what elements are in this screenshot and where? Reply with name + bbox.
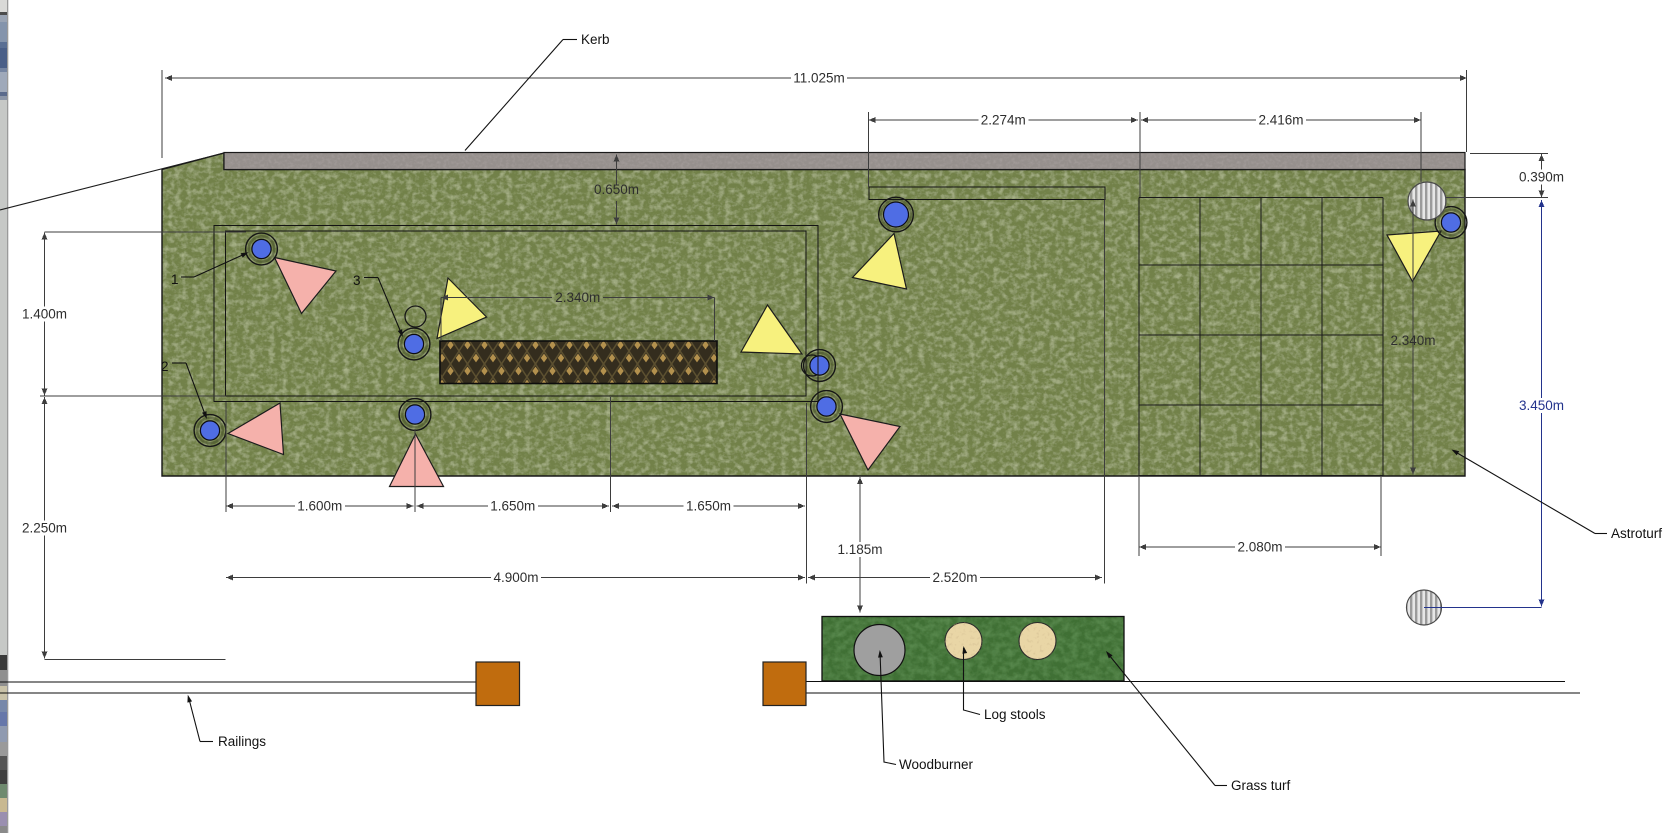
svg-text:1.600m: 1.600m (297, 499, 342, 514)
svg-text:0.390m: 0.390m (1519, 170, 1564, 185)
svg-text:2.250m: 2.250m (22, 520, 67, 535)
svg-text:2.340m: 2.340m (1390, 333, 1435, 348)
svg-text:0.650m: 0.650m (594, 182, 639, 197)
svg-text:2.416m: 2.416m (1258, 113, 1303, 128)
svg-text:1.650m: 1.650m (686, 499, 731, 514)
svg-text:Woodburner: Woodburner (899, 757, 974, 772)
svg-text:Railings: Railings (218, 734, 266, 749)
svg-text:2: 2 (161, 359, 169, 374)
svg-text:2.274m: 2.274m (981, 113, 1026, 128)
svg-text:2.080m: 2.080m (1237, 540, 1282, 555)
svg-text:Kerb: Kerb (581, 32, 610, 47)
svg-text:3.450m: 3.450m (1519, 398, 1564, 413)
svg-text:1: 1 (171, 272, 179, 287)
svg-text:1.185m: 1.185m (837, 542, 882, 557)
svg-text:Astroturf: Astroturf (1611, 526, 1662, 541)
svg-text:2.340m: 2.340m (555, 290, 600, 305)
svg-text:1.650m: 1.650m (490, 499, 535, 514)
svg-text:2.520m: 2.520m (932, 570, 977, 585)
svg-text:Grass turf: Grass turf (1231, 778, 1291, 793)
svg-text:3: 3 (353, 273, 361, 288)
svg-text:1.400m: 1.400m (22, 307, 67, 322)
svg-text:11.025m: 11.025m (793, 71, 845, 86)
svg-text:4.900m: 4.900m (493, 570, 538, 585)
svg-text:Log stools: Log stools (984, 707, 1046, 722)
